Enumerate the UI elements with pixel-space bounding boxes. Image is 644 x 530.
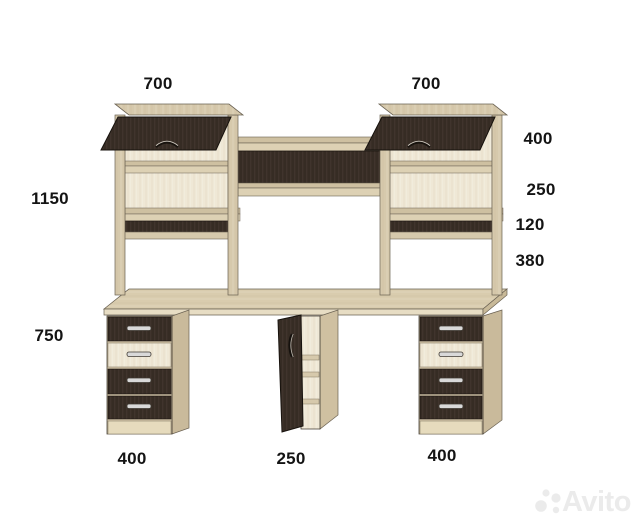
center-cabinet-shelf	[302, 355, 319, 360]
left-flip-door	[101, 117, 231, 150]
drawer-handle	[127, 326, 151, 331]
desktop-top-face	[104, 289, 507, 309]
avito-watermark: Avito	[533, 484, 643, 526]
hutch	[101, 104, 507, 295]
desktop-front-edge	[104, 309, 483, 315]
left-cabinet-right-panel	[228, 115, 238, 295]
desktop	[104, 289, 507, 315]
left-cabinet-shelf	[125, 166, 228, 173]
center-cabinet	[278, 310, 338, 432]
drawer-handle	[439, 378, 463, 383]
drawer-handle	[439, 352, 463, 357]
dim-clearance-height: 380	[516, 251, 545, 271]
dim-left-pedestal-width: 400	[118, 449, 147, 469]
right-cabinet-top	[379, 104, 507, 115]
dim-hutch-total-height: 1150	[31, 189, 69, 209]
bridge-back-panel	[238, 151, 380, 183]
right-niche-shelf	[385, 232, 501, 239]
desk-drawing	[0, 0, 644, 530]
drawer-handle	[127, 352, 151, 357]
dim-left-cabinet-width: 700	[144, 74, 173, 94]
center-cabinet-shelf	[302, 372, 319, 377]
right-drawer-pedestal	[419, 310, 502, 434]
dim-right-cabinet-width: 700	[412, 74, 441, 94]
dim-niche-height: 120	[516, 215, 545, 235]
dim-cabinet-height: 400	[524, 129, 553, 149]
left-cabinet-bottom	[125, 214, 240, 221]
left-niche-back-panel	[125, 221, 228, 233]
furniture-dimension-diagram: 700 700 1150 400 250 120 380 750 400 250…	[0, 0, 644, 530]
center-cabinet-shelf	[302, 399, 319, 404]
drawer-handle	[439, 326, 463, 331]
center-cabinet-side	[320, 310, 338, 429]
left-drawer-pedestal	[107, 310, 189, 434]
drawer-handle	[127, 378, 151, 383]
avito-logo-dots-icon	[533, 488, 561, 522]
center-cabinet-door	[278, 315, 303, 432]
avito-logo-text: Avito	[562, 486, 631, 519]
right-pedestal-side	[483, 310, 502, 434]
left-niche-shelf	[121, 232, 237, 239]
drawer-handle	[127, 404, 151, 409]
right-cabinet-right-panel	[492, 115, 502, 295]
dim-desk-height: 750	[35, 326, 64, 346]
right-flip-door	[365, 117, 495, 150]
left-pedestal-side	[172, 310, 189, 434]
dim-center-cabinet-width: 250	[277, 449, 306, 469]
center-bridge-shelf	[238, 137, 380, 196]
right-cabinet-shelf	[390, 166, 492, 173]
dim-right-pedestal-width: 400	[428, 446, 457, 466]
right-cabinet-bottom	[388, 214, 503, 221]
left-pedestal-plinth	[108, 421, 171, 434]
right-pedestal-plinth	[420, 421, 482, 434]
drawer-handle	[439, 404, 463, 409]
dim-opening-height: 250	[527, 180, 556, 200]
right-niche-back-panel	[390, 221, 492, 233]
left-cabinet-top	[115, 104, 243, 115]
